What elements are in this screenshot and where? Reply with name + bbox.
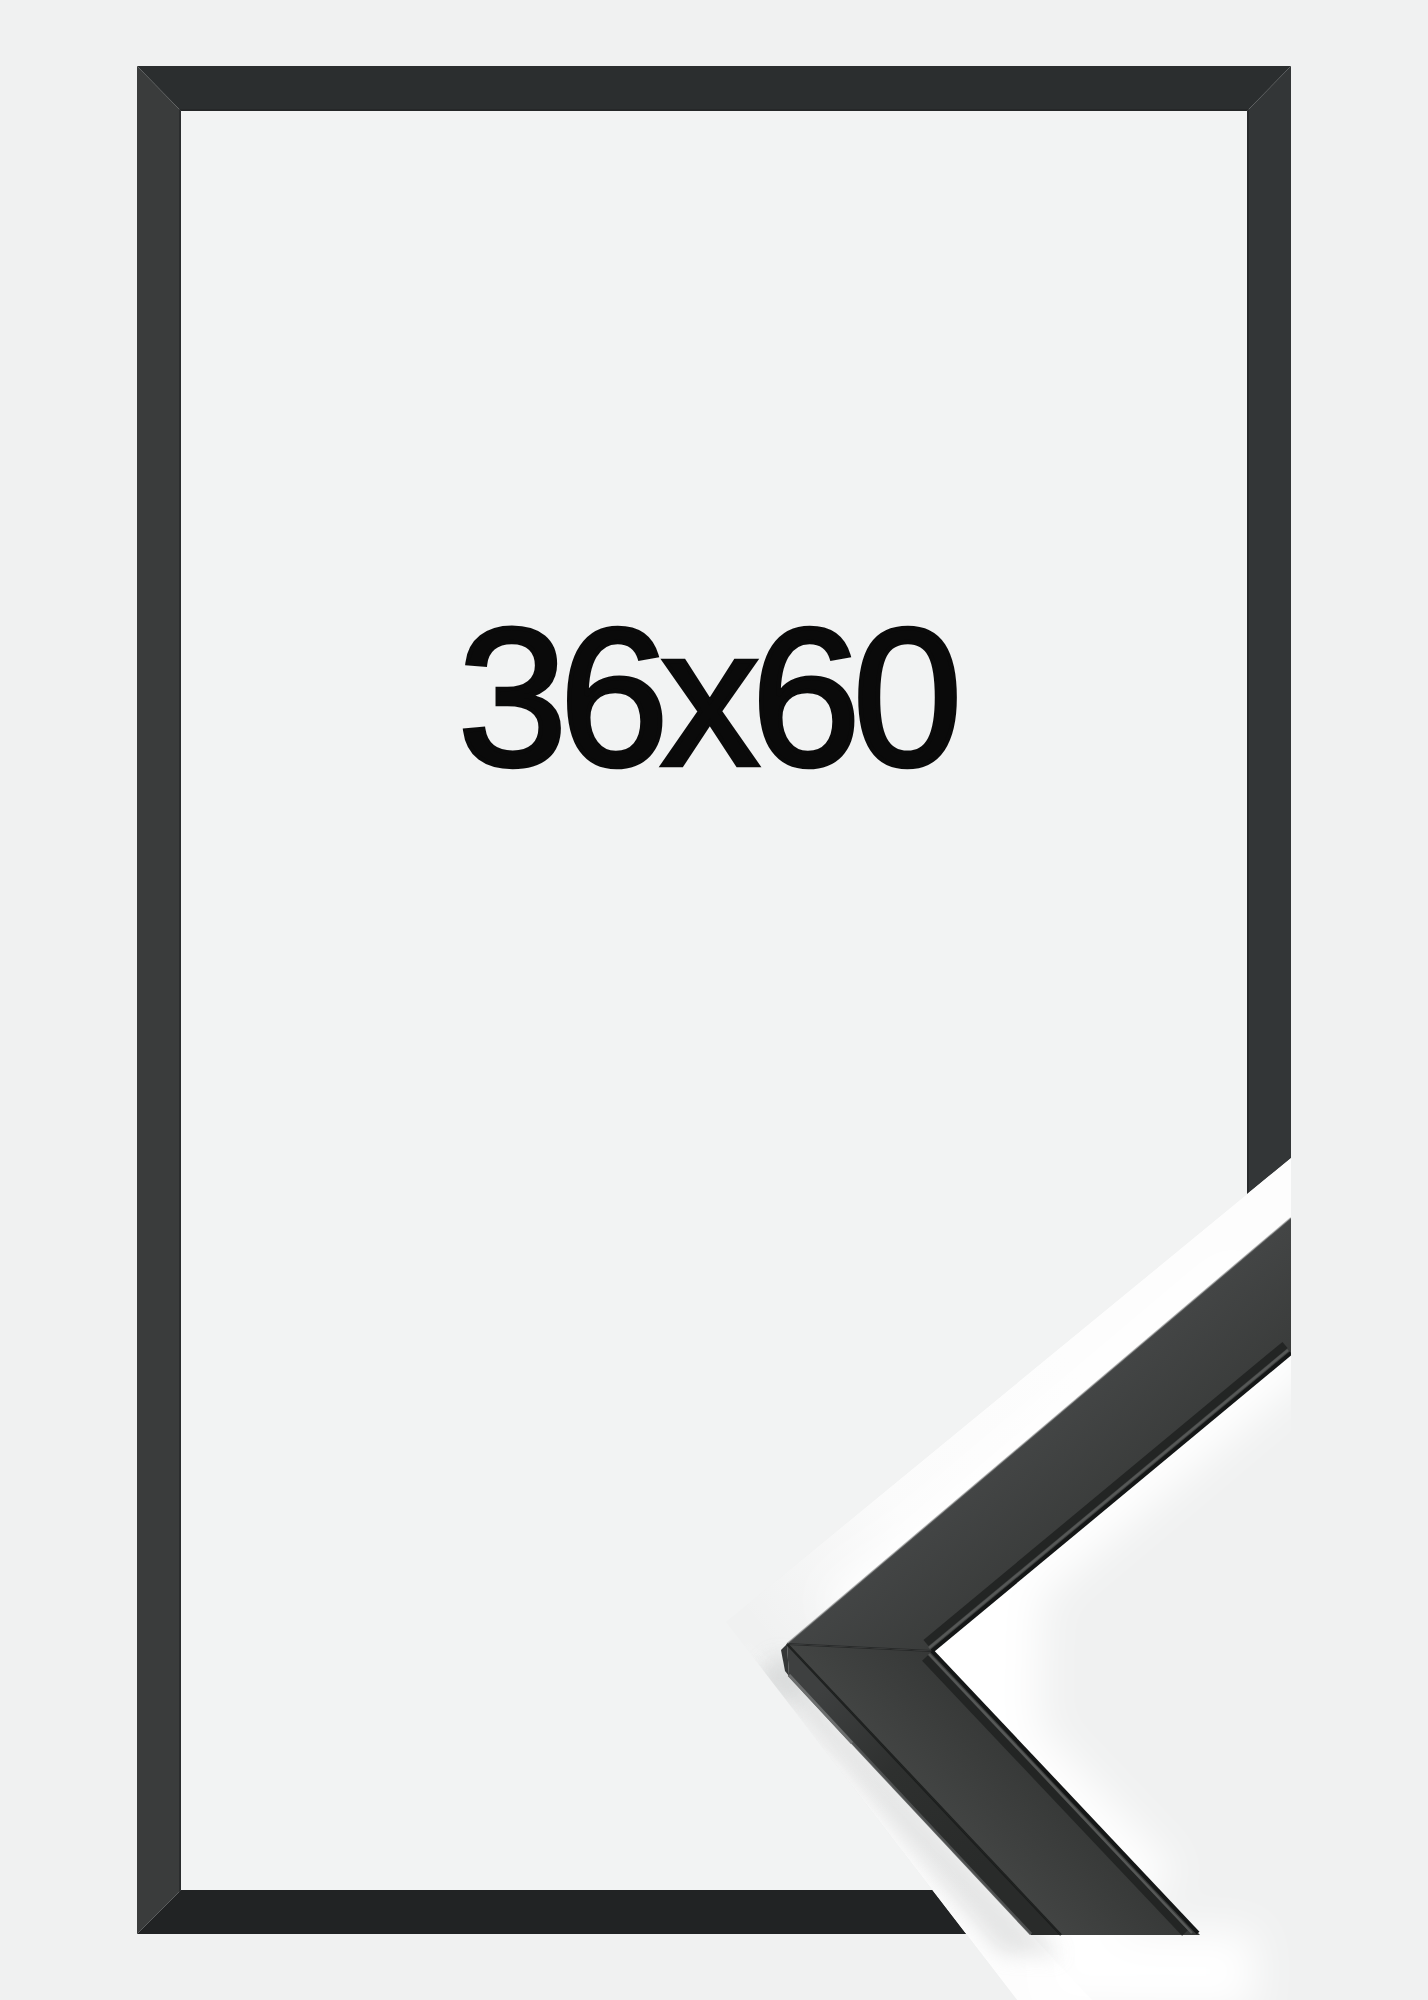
svg-text:36x60: 36x60 — [458, 587, 955, 807]
